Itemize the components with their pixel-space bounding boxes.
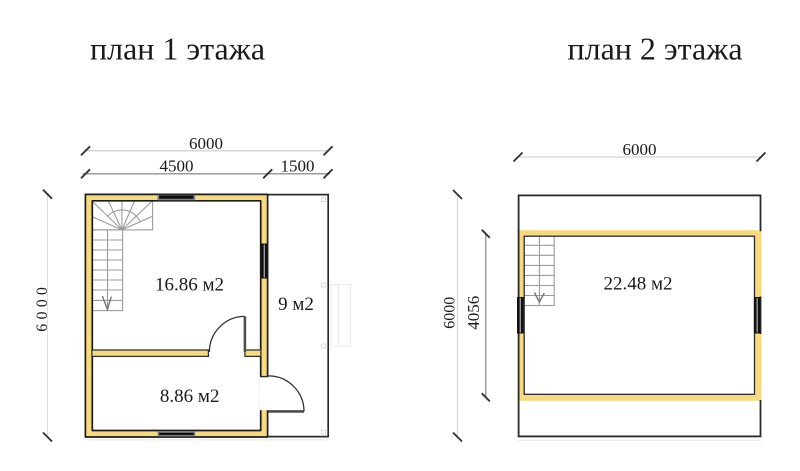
svg-text:16.86 м2: 16.86 м2 bbox=[155, 275, 224, 296]
svg-text:4056: 4056 bbox=[464, 296, 483, 330]
svg-text:6000: 6000 bbox=[34, 283, 51, 332]
svg-text:4500: 4500 bbox=[160, 157, 194, 176]
svg-text:1500: 1500 bbox=[281, 157, 315, 176]
svg-text:6000: 6000 bbox=[441, 297, 458, 329]
svg-text:план 1 этажа: план 1 этажа bbox=[90, 31, 265, 67]
svg-text:план 2 этажа: план 2 этажа bbox=[568, 31, 743, 67]
svg-text:6000: 6000 bbox=[189, 134, 223, 153]
svg-text:9 м2: 9 м2 bbox=[278, 294, 314, 315]
svg-text:6000: 6000 bbox=[623, 140, 657, 159]
svg-text:22.48 м2: 22.48 м2 bbox=[603, 273, 672, 294]
svg-text:8.86 м2: 8.86 м2 bbox=[160, 386, 220, 407]
